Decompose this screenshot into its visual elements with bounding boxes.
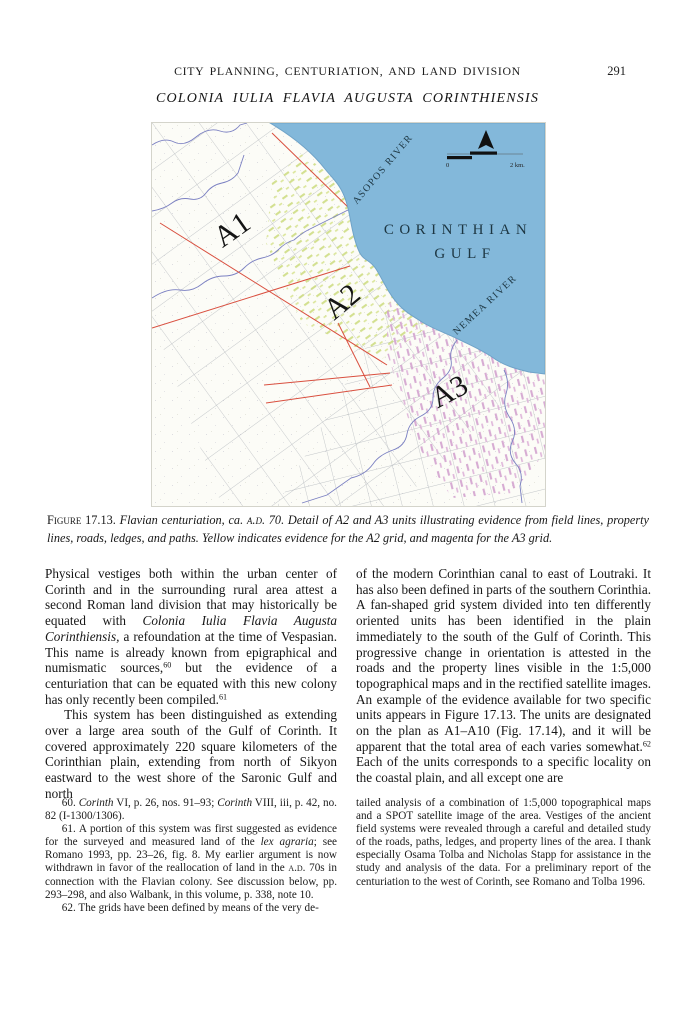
footnote-60: 60. Corinth VI, p. 26, nos. 91–93; Corin… bbox=[45, 797, 337, 823]
corinthian-gulf-label-line1: CORINTHIAN bbox=[384, 222, 532, 238]
body-paragraph-2: This system has been distinguished as ex… bbox=[45, 707, 337, 801]
body-columns: Physical vestiges both within the urban … bbox=[45, 566, 651, 802]
footnote-62-continuation: tailed analysis of a combination of 1:5,… bbox=[356, 797, 651, 889]
scale-zero-label: 0 bbox=[446, 162, 449, 169]
body-left-column: Physical vestiges both within the urban … bbox=[45, 566, 337, 802]
corinthian-gulf-label-line2: GULF bbox=[434, 246, 495, 262]
article-title: COLONIA IULIA FLAVIA AUGUSTA CORINTHIENS… bbox=[0, 91, 695, 107]
running-head: CITY PLANNING, CENTURIATION, AND LAND DI… bbox=[0, 64, 695, 79]
centuriation-map-svg: CORINTHIAN GULF ASOPOS RIVER NEMEA RIVER… bbox=[152, 123, 545, 506]
footnote-columns: 60. Corinth VI, p. 26, nos. 91–93; Corin… bbox=[45, 797, 651, 915]
page-number: 291 bbox=[607, 64, 626, 79]
book-page: CITY PLANNING, CENTURIATION, AND LAND DI… bbox=[0, 0, 695, 1024]
footnotes-right-column: tailed analysis of a combination of 1:5,… bbox=[356, 797, 651, 915]
footnote-62: 62. The grids have been defined by means… bbox=[45, 902, 337, 915]
body-paragraph-1: Physical vestiges both within the urban … bbox=[45, 566, 337, 707]
footnote-61: 61. A portion of this system was first s… bbox=[45, 823, 337, 902]
body-right-column: of the modern Corinthian canal to east o… bbox=[356, 566, 651, 802]
footnotes-left-column: 60. Corinth VI, p. 26, nos. 91–93; Corin… bbox=[45, 797, 337, 915]
figure-17-13-map: CORINTHIAN GULF ASOPOS RIVER NEMEA RIVER… bbox=[151, 122, 546, 507]
figure-caption: Figure 17.13. Flavian centuriation, ca. … bbox=[47, 511, 649, 547]
body-paragraph-3: of the modern Corinthian canal to east o… bbox=[356, 566, 651, 786]
scale-max-label: 2 km. bbox=[510, 162, 525, 169]
